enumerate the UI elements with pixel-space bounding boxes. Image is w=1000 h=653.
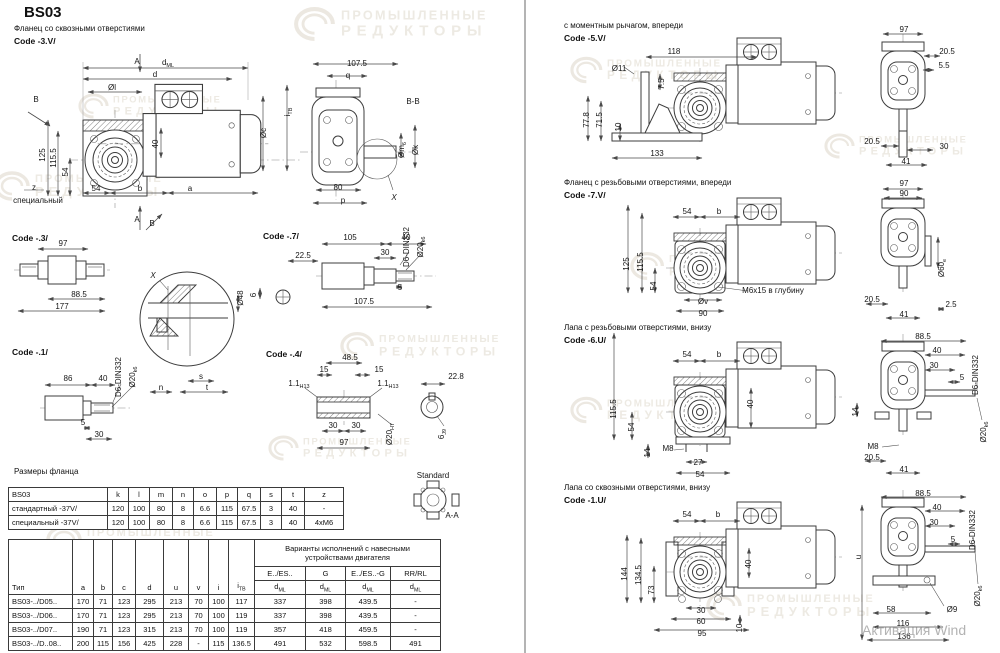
column-header: q <box>238 488 261 502</box>
dim-label: M6x15 в глубину <box>742 286 804 295</box>
caption-code-3v: Code -3.V/ <box>14 36 56 46</box>
dim-label: B-B <box>406 97 419 106</box>
dim-label: D6-DIN332 <box>402 226 411 267</box>
table-cell: 3 <box>261 516 282 530</box>
table-cell: 357 <box>255 623 306 637</box>
table-cell: 459.5 <box>346 623 391 637</box>
dim-label: 97 <box>900 179 909 188</box>
table-cell: BS03-../D07.. <box>9 623 73 637</box>
dim-label: 40 <box>746 399 755 408</box>
dim-label: 20.5 <box>864 453 880 462</box>
dim-label: Øl <box>108 83 116 92</box>
table-cell: 80 <box>150 502 173 516</box>
dim-label: s <box>199 372 203 381</box>
dim-label: a <box>188 184 193 193</box>
table-cell: - <box>391 609 441 623</box>
column-header: E../ES.. <box>255 567 306 581</box>
table-cell: 119 <box>229 623 255 637</box>
page-title: BS03 <box>24 4 62 21</box>
table-cell: 213 <box>164 595 189 609</box>
table-cell: BS03-../D06.. <box>9 609 73 623</box>
dim-label: 97 <box>340 438 349 447</box>
column-header: m <box>150 488 173 502</box>
dim-label: 177 <box>55 302 69 311</box>
table-cell: - <box>189 637 209 651</box>
table-cell: 100 <box>129 516 150 530</box>
dim-label: 88.5 <box>915 332 931 341</box>
dim-label: 54 <box>61 167 70 176</box>
table-cell: 398 <box>306 609 346 623</box>
dim-label: 41 <box>900 465 909 474</box>
table-cell: 532 <box>306 637 346 651</box>
dim-label: 22.8 <box>448 372 464 381</box>
table-cell: 100 <box>209 595 229 609</box>
dim-label: X <box>390 193 397 202</box>
dim-label: 60 <box>697 617 706 626</box>
table-cell: 120 <box>108 516 129 530</box>
dim-label: 1.1H13 <box>377 379 398 390</box>
flange-table-header-row: BS03 k l m n o p q s t z <box>9 488 344 502</box>
column-header: o <box>194 488 217 502</box>
dim-label: 54 <box>649 281 658 290</box>
dim-label: 77.8 <box>582 112 591 128</box>
table-cell: 228 <box>164 637 189 651</box>
column-header-type: Тип <box>9 540 73 595</box>
caption-flange-through: Фланец со сквозными отверстиями <box>14 24 145 33</box>
table-row: специальный -37V/1201008086.611567.53404… <box>9 516 344 530</box>
dim-label: Ø9 <box>947 605 958 614</box>
dim-label: 73 <box>647 585 656 594</box>
table-cell: 8 <box>173 516 194 530</box>
dim-label: d <box>153 70 157 79</box>
table-cell: 71 <box>94 623 113 637</box>
column-header: G <box>306 567 346 581</box>
table-cell: 425 <box>136 637 164 651</box>
table-row: BS03-../D07..190711233152137010011935741… <box>9 623 441 637</box>
dim-label: Øk <box>411 144 420 155</box>
caption-code-1: Code -.1/ <box>12 347 48 357</box>
dim-label: 58 <box>887 605 896 614</box>
dim-label: D6-DIN332 <box>114 356 123 397</box>
column-header: u <box>164 540 189 595</box>
dim-label: 125 <box>622 257 631 271</box>
table-cell: BS03-../D..08.. <box>9 637 73 651</box>
dim-label: B <box>33 95 38 104</box>
table-cell: 491 <box>391 637 441 651</box>
dim-label: 10 <box>735 623 744 632</box>
table-cell: 100 <box>209 623 229 637</box>
dim-label: 115.5 <box>609 399 618 419</box>
dim-label: 30 <box>930 518 939 527</box>
column-header: d <box>136 540 164 595</box>
dim-label: 54 <box>683 350 692 359</box>
column-header: l <box>129 488 150 502</box>
table-cell: 315 <box>136 623 164 637</box>
table-cell: - <box>391 595 441 609</box>
dim-label: M8 <box>867 442 879 451</box>
dim-label: 90 <box>900 189 909 198</box>
main-table-header-row: Тип a b c d u v i iТВ Варианты исполнени… <box>9 540 441 567</box>
dim-label: 14 <box>643 448 652 457</box>
flange-dimensions-table: BS03 k l m n o p q s t z стандартный -37… <box>8 487 344 530</box>
dim-label: 133 <box>650 149 664 158</box>
table-cell: 115 <box>217 516 238 530</box>
dim-label: z <box>32 183 36 192</box>
dim-label: 7.5 <box>657 78 666 90</box>
dim-label: Ø11 <box>612 64 627 73</box>
table-cell: специальный -37V/ <box>9 516 108 530</box>
caption-code-4: Code -.4/ <box>266 349 302 359</box>
dim-label: M8 <box>662 444 674 453</box>
column-header: BS03 <box>9 488 108 502</box>
column-header: n <box>173 488 194 502</box>
dim-label: 107.5 <box>347 59 368 68</box>
table-cell: - <box>391 623 441 637</box>
dim-label: 115.5 <box>49 148 58 168</box>
table-cell: 115 <box>209 637 229 651</box>
dim-label: 5 <box>960 373 965 382</box>
column-header: t <box>282 488 305 502</box>
table-cell: 71 <box>94 595 113 609</box>
table-cell: 337 <box>255 609 306 623</box>
column-header: E../ES..-G <box>346 567 391 581</box>
dim-label: 10 <box>614 122 623 131</box>
column-header: v <box>189 540 209 595</box>
column-header-dml: dML <box>306 581 346 595</box>
table-cell: стандартный -37V/ <box>9 502 108 516</box>
dim-label: 97 <box>59 239 68 248</box>
dim-label: 2.5 <box>945 300 957 309</box>
dim-label: 40 <box>933 503 942 512</box>
dim-label: 15 <box>320 365 329 374</box>
dim-label: 86 <box>64 374 73 383</box>
dim-label: 20.5 <box>864 295 880 304</box>
table-row: BS03-../D..08..200115156425228-115136.54… <box>9 637 441 651</box>
dim-label: 115.5 <box>636 252 645 272</box>
table-cell: 156 <box>113 637 136 651</box>
dim-label: 107.5 <box>354 297 375 306</box>
table-cell: 115 <box>94 637 113 651</box>
table-cell: 200 <box>73 637 94 651</box>
table-cell: 123 <box>113 623 136 637</box>
column-header-itb: iТВ <box>229 540 255 595</box>
table-cell: 120 <box>108 502 129 516</box>
dim-label: n <box>159 383 163 392</box>
table-cell: 71 <box>94 609 113 623</box>
dim-label: 20.5 <box>864 137 880 146</box>
dim-label: iТВ <box>283 107 294 116</box>
table-cell: 6.6 <box>194 502 217 516</box>
dim-label: 40 <box>99 374 108 383</box>
table-cell: 213 <box>164 623 189 637</box>
dim-label: Standard <box>417 471 449 480</box>
column-header: b <box>94 540 113 595</box>
dim-label: 40 <box>151 139 160 148</box>
table-cell: 398 <box>306 595 346 609</box>
column-header: i <box>209 540 229 595</box>
dim-label: 88.5 <box>915 489 931 498</box>
table-cell: 3 <box>261 502 282 516</box>
table-row: стандартный -37V/1201008086.611567.5340- <box>9 502 344 516</box>
dim-label: A <box>134 215 140 224</box>
column-header: RR/RL <box>391 567 441 581</box>
table-cell: 100 <box>129 502 150 516</box>
table-cell: 40 <box>282 502 305 516</box>
dim-label: 22.5 <box>295 251 311 260</box>
table-cell: 439.5 <box>346 595 391 609</box>
table-cell: 123 <box>113 609 136 623</box>
caption-code-1u: Code -1.U/ <box>564 495 606 505</box>
dim-label: Øc <box>259 128 268 138</box>
dim-label: 1.1H13 <box>288 379 309 390</box>
table-cell: 40 <box>282 516 305 530</box>
dim-label: Ø48 <box>236 290 245 306</box>
table-row: BS03-../D05..170711232952137010011733739… <box>9 595 441 609</box>
dim-label: 30 <box>95 430 104 439</box>
table-cell: 70 <box>189 595 209 609</box>
dim-label: p <box>341 196 346 205</box>
dim-label: 71.5 <box>595 112 604 128</box>
table-cell: 295 <box>136 609 164 623</box>
dim-label: b <box>716 510 721 519</box>
dim-label: Ø20k6 <box>979 422 990 443</box>
dim-label: специальный <box>13 196 63 205</box>
variants-group-header: Варианты исполнений с навесными устройст… <box>255 540 441 567</box>
dim-label: D6-DIN332 <box>971 354 980 395</box>
table-cell: 598.5 <box>346 637 391 651</box>
dim-label: 40 <box>933 346 942 355</box>
table-cell: 439.5 <box>346 609 391 623</box>
column-header: s <box>261 488 282 502</box>
table-cell: 337 <box>255 595 306 609</box>
table-cell: BS03-../D05.. <box>9 595 73 609</box>
dim-label: 105 <box>343 233 357 242</box>
dim-label: 5 <box>81 418 86 427</box>
dim-label: 90 <box>699 309 708 318</box>
dim-label: X <box>149 271 156 280</box>
dim-label: 144 <box>620 567 629 581</box>
column-header-dml: dML <box>255 581 306 595</box>
dim-label: 6 <box>249 292 258 297</box>
dim-label: B <box>149 219 154 228</box>
dim-label: 27 <box>694 458 703 467</box>
dim-label: 30 <box>329 421 338 430</box>
dim-label: 48.5 <box>342 353 358 362</box>
dim-label: dML <box>162 58 174 69</box>
dim-label: 41 <box>900 310 909 319</box>
dim-label: 30 <box>352 421 361 430</box>
caption-code-6u: Code -6.U/ <box>564 335 606 345</box>
caption-flange-tapped: Фланец с резьбовыми отверстиями, впереди <box>564 178 731 187</box>
datasheet-page: ПРОМЫШЛЕННЫЕРЕДУКТОРЫПРОМЫШЛЕННЫЕРЕДУКТО… <box>0 0 1000 653</box>
dim-label: b <box>138 184 143 193</box>
caption-code-5v: Code -5.V/ <box>564 33 606 43</box>
dim-label: 14 <box>851 407 860 416</box>
table-cell: 115 <box>217 502 238 516</box>
caption-torque-arm: с моментным рычагом, впереди <box>564 21 683 30</box>
dim-label: 5 <box>951 535 956 544</box>
table-cell: 80 <box>150 516 173 530</box>
dim-label: 54 <box>627 422 636 431</box>
table-cell: 491 <box>255 637 306 651</box>
table-cell: 67.5 <box>238 502 261 516</box>
table-cell: 70 <box>189 609 209 623</box>
dim-label: Øv <box>698 297 708 306</box>
dim-label: 6J9 <box>437 429 448 439</box>
type-dimensions-table: Тип a b c d u v i iТВ Варианты исполнени… <box>8 539 441 651</box>
dim-label: 54 <box>683 207 692 216</box>
windows-activation-watermark: Активация Wind <box>862 622 966 638</box>
dim-label: Øm6 <box>397 142 408 158</box>
dim-label: 134.5 <box>634 564 643 585</box>
dim-label: D6-DIN332 <box>968 509 977 550</box>
dim-label: 54 <box>683 510 692 519</box>
table-cell: 67.5 <box>238 516 261 530</box>
dim-label: 41 <box>902 157 911 166</box>
column-header: c <box>113 540 136 595</box>
dim-label: b <box>717 207 722 216</box>
caption-foot-tapped: Лапа с резьбовыми отверстиями, внизу <box>564 323 711 332</box>
caption-code-3: Code -.3/ <box>12 233 48 243</box>
dim-label: 95 <box>698 629 707 638</box>
table-cell: 70 <box>189 623 209 637</box>
dim-label: 80 <box>334 183 343 192</box>
column-header: p <box>217 488 238 502</box>
column-header: z <box>305 488 344 502</box>
dim-label: 54 <box>92 184 101 193</box>
dim-label: q <box>346 71 350 80</box>
dim-label: 125 <box>38 148 47 162</box>
dim-label: Ø20k6 <box>973 586 984 607</box>
dim-label: t <box>206 383 209 392</box>
table-cell: 170 <box>73 595 94 609</box>
dim-label: 20.5 <box>939 47 955 56</box>
dim-label: b <box>717 350 722 359</box>
table-cell: 136.5 <box>229 637 255 651</box>
column-header: a <box>73 540 94 595</box>
caption-code-7: Code -.7/ <box>263 231 299 241</box>
dim-label: Ø20k6 <box>128 367 139 388</box>
table-cell: 117 <box>229 595 255 609</box>
table-cell: 418 <box>306 623 346 637</box>
table-cell: 213 <box>164 609 189 623</box>
dim-label: Ø20H7 <box>385 423 396 445</box>
dim-label: A-A <box>445 511 459 520</box>
dim-label: 30 <box>697 606 706 615</box>
table-cell: 6.6 <box>194 516 217 530</box>
column-header-dml: dML <box>346 581 391 595</box>
caption-code-7v: Code -7.V/ <box>564 190 606 200</box>
dim-label: Ø60e <box>937 259 948 277</box>
table-cell: 119 <box>229 609 255 623</box>
dim-label: 30 <box>930 361 939 370</box>
column-header-dml: dML <box>391 581 441 595</box>
column-header: k <box>108 488 129 502</box>
dim-label: 118 <box>668 47 681 56</box>
table-cell: 4xM6 <box>305 516 344 530</box>
dim-label: 40 <box>744 559 753 568</box>
caption-foot-through: Лапа со сквозными отверстиями, внизу <box>564 483 710 492</box>
dim-label: 88.5 <box>71 290 87 299</box>
dim-label: Ø20k6 <box>416 237 427 258</box>
dim-label: 30 <box>940 142 949 151</box>
dim-label: 54 <box>696 470 705 479</box>
table-cell: 170 <box>73 609 94 623</box>
dim-label: 5.5 <box>938 61 950 70</box>
table-cell: 123 <box>113 595 136 609</box>
dim-label: 97 <box>900 25 909 34</box>
table-cell: 295 <box>136 595 164 609</box>
caption-flange-dims-title: Размеры фланца <box>14 467 78 476</box>
dim-label: 15 <box>375 365 384 374</box>
dim-label: 30 <box>381 248 390 257</box>
dim-label: A <box>134 57 140 66</box>
table-cell: 190 <box>73 623 94 637</box>
table-row: BS03-../D06..170711232952137010011933739… <box>9 609 441 623</box>
table-cell: 8 <box>173 502 194 516</box>
dim-label: 5 <box>398 283 403 292</box>
table-cell: - <box>305 502 344 516</box>
table-cell: 100 <box>209 609 229 623</box>
dim-label: u <box>854 555 863 559</box>
